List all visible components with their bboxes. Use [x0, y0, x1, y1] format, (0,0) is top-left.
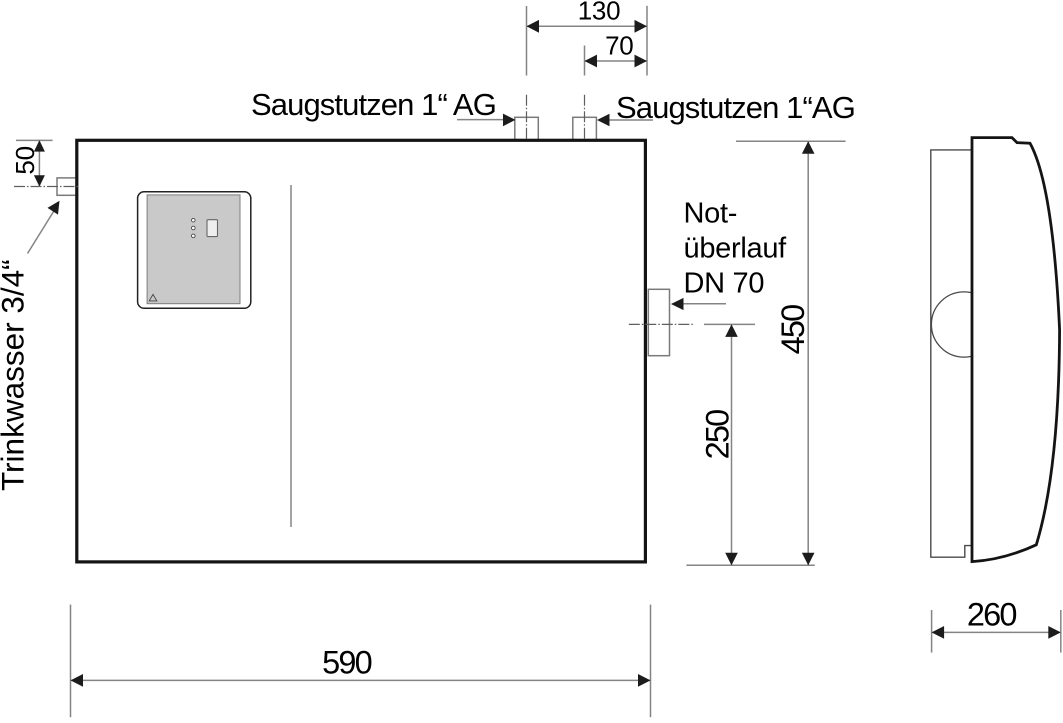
svg-text:DN 70: DN 70 [684, 268, 765, 300]
svg-text:überlauf: überlauf [684, 233, 788, 265]
svg-text:70: 70 [605, 30, 633, 60]
svg-text:50: 50 [10, 146, 40, 174]
svg-text:Trinkwasser 3/4“: Trinkwasser 3/4“ [0, 259, 30, 491]
svg-text:260: 260 [967, 596, 1017, 632]
svg-text:Saugstutzen 1“ AG: Saugstutzen 1“ AG [251, 87, 496, 122]
svg-text:130: 130 [578, 0, 620, 26]
svg-text:250: 250 [700, 410, 736, 460]
svg-text:590: 590 [322, 645, 372, 681]
svg-text:450: 450 [775, 305, 811, 355]
svg-text:Not-: Not- [684, 198, 738, 230]
